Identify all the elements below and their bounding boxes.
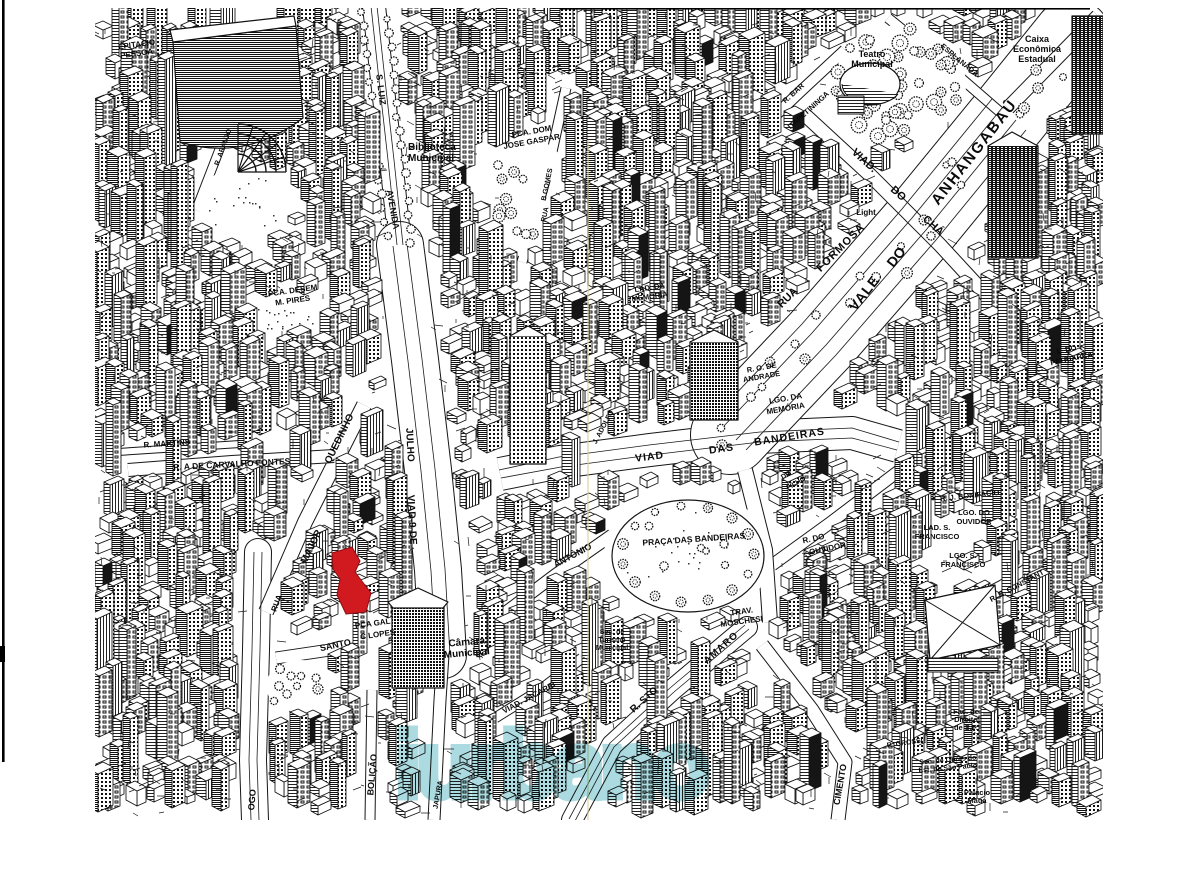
- svg-text:iurbano: iurbano: [395, 712, 706, 817]
- svg-text:Estadual: Estadual: [1018, 54, 1056, 64]
- svg-text:Econômica: Econômica: [1013, 44, 1062, 54]
- svg-text:Municipal: Municipal: [851, 59, 893, 69]
- svg-text:Teatro: Teatro: [859, 49, 886, 59]
- svg-text:LGO. DO: LGO. DO: [958, 508, 990, 517]
- svg-text:Municipal: Municipal: [408, 153, 454, 164]
- svg-text:JULHO: JULHO: [403, 428, 416, 463]
- svg-text:Caixa: Caixa: [1025, 34, 1050, 44]
- svg-text:Biblioteca: Biblioteca: [408, 142, 456, 153]
- svg-text:LGO. S.: LGO. S.: [949, 551, 977, 560]
- svg-text:OGO: OGO: [246, 789, 258, 811]
- svg-text:de S.P.: de S.P.: [954, 723, 978, 732]
- svg-text:Sec. de: Sec. de: [600, 629, 625, 636]
- svg-text:FRANCISCO: FRANCISCO: [915, 532, 960, 541]
- svg-text:FRANCISCO: FRANCISCO: [941, 560, 986, 569]
- svg-text:LAD. S.: LAD. S.: [924, 523, 951, 532]
- svg-text:OUVIDOR: OUVIDOR: [956, 517, 992, 526]
- svg-text:Mauá: Mauá: [967, 796, 987, 805]
- svg-text:Light: Light: [856, 208, 876, 217]
- svg-text:Municipal: Municipal: [596, 645, 628, 652]
- svg-text:Turismo: Turismo: [598, 637, 625, 644]
